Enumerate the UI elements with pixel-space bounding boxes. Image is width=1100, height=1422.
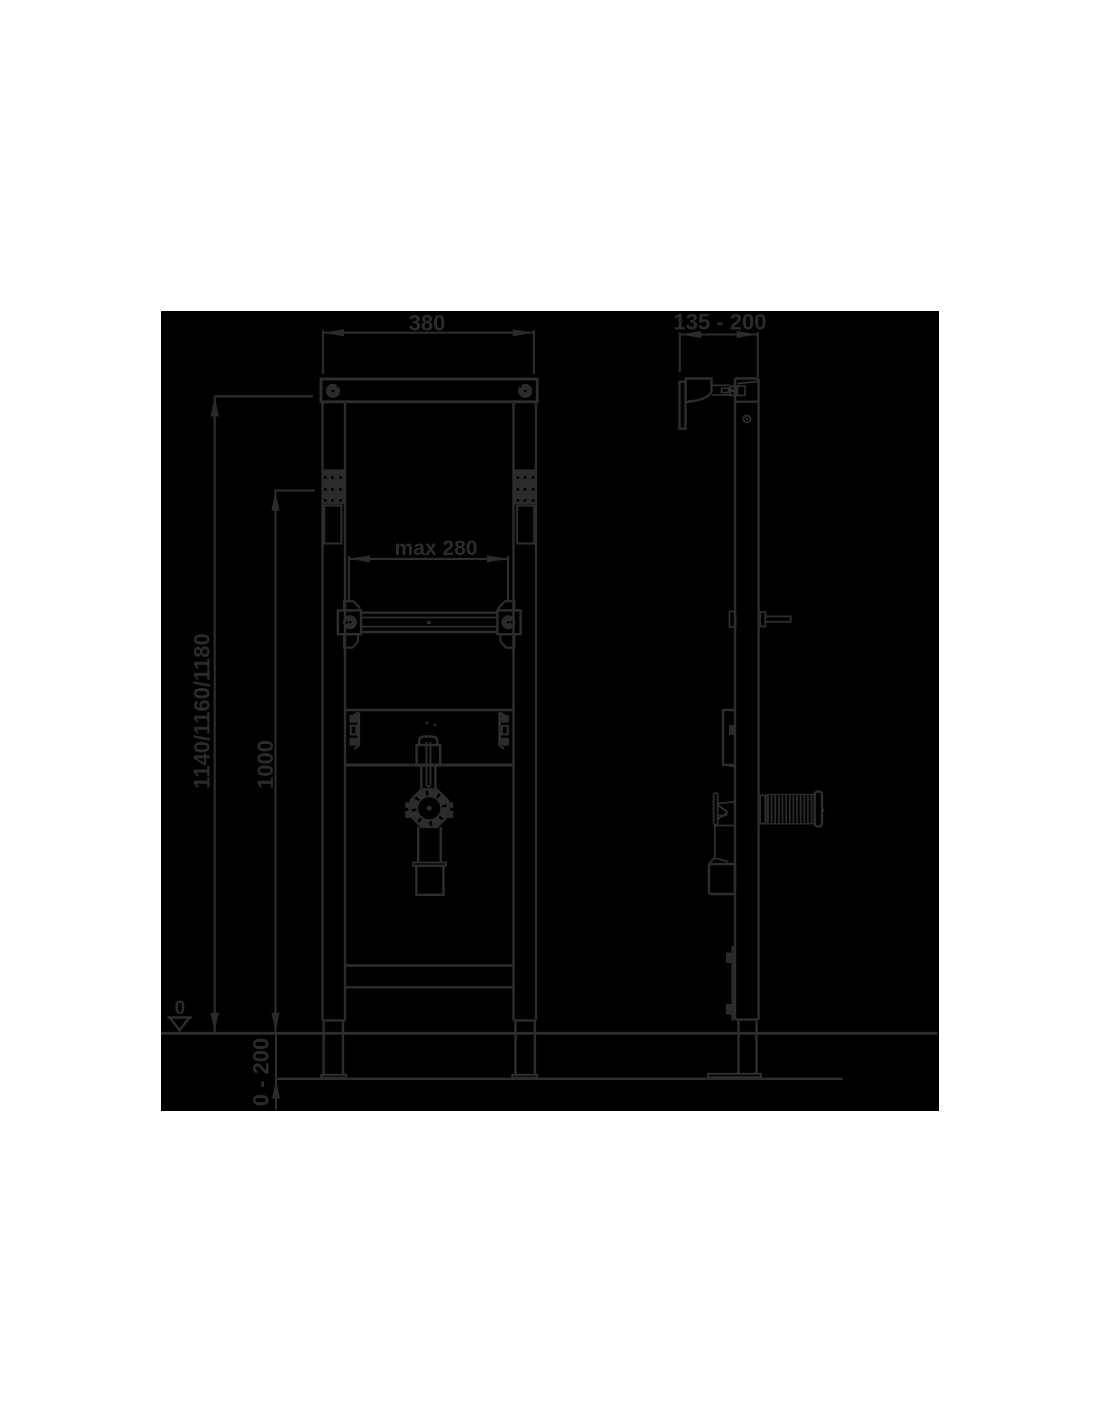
svg-text:1140/1160/1180: 1140/1160/1180 <box>190 633 215 788</box>
svg-text:0 - 200: 0 - 200 <box>249 1038 274 1107</box>
svg-text:max 280: max 280 <box>395 537 478 560</box>
svg-text:135 - 200: 135 - 200 <box>674 310 767 335</box>
svg-text:0: 0 <box>175 998 186 1019</box>
svg-text:1000: 1000 <box>253 740 278 789</box>
